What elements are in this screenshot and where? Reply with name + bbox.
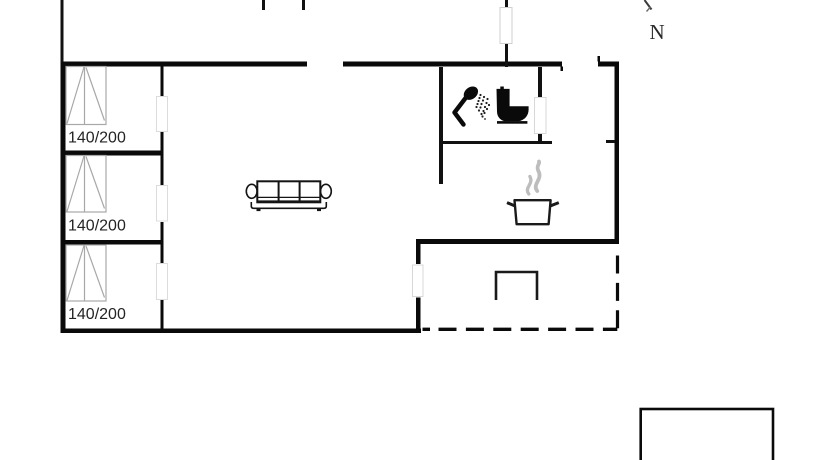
svg-text:N: N xyxy=(650,20,665,44)
svg-text:140/200: 140/200 xyxy=(68,218,126,235)
svg-text:140/200: 140/200 xyxy=(68,130,126,147)
svg-text:140/200: 140/200 xyxy=(68,306,126,323)
